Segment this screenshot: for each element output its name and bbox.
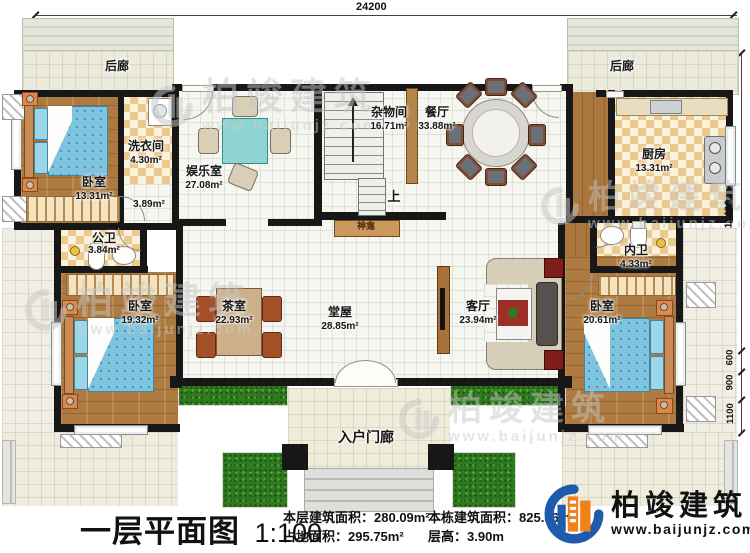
bed-pillow (34, 108, 48, 140)
room-area: 28.85m² (321, 321, 358, 332)
stat-label: 本栋建筑面积： (428, 510, 519, 525)
room-name: 客厅 (466, 299, 490, 313)
stat-value: 295.75m² (348, 529, 404, 544)
room-name: 卧室 (82, 175, 106, 189)
room-label-kitchen: 厨房 13.31m² (635, 148, 672, 174)
wall (212, 84, 532, 91)
stove-burner (709, 162, 721, 174)
nightstand (62, 300, 78, 315)
door-opening (606, 91, 624, 98)
room-label-bedroom3: 卧室 20.61m² (583, 300, 620, 326)
bed-pillow (650, 356, 664, 390)
stat-line: 本层建筑面积：280.09m² (283, 508, 430, 527)
game-table (222, 118, 268, 164)
room-name: 厨房 (642, 147, 666, 161)
floor-plan-page: 24200 11400 600 900 1100 后廊 后廊 入户门廊 (0, 0, 750, 553)
ac-unit (686, 282, 716, 308)
wall (58, 266, 148, 273)
room-name: 公卫 (92, 231, 116, 245)
wall (14, 223, 178, 230)
room-area: 3.89m² (133, 199, 165, 210)
bed-headboard (664, 316, 674, 394)
dimension-tick (738, 429, 745, 436)
brand-logo-icon (543, 484, 605, 544)
bed-sheet (584, 318, 610, 390)
bed-pillow (650, 320, 664, 354)
stairs-up-label: 上 (387, 190, 400, 204)
wall (560, 376, 572, 388)
room-name: 餐厅 (425, 105, 449, 119)
room-name: 杂物间 (371, 105, 407, 119)
porch-left-roof (22, 18, 174, 52)
entry-porch-floor (288, 388, 450, 468)
bed-pillow (74, 320, 88, 354)
partition-storage-dining (406, 88, 418, 184)
nightstand (62, 394, 78, 409)
wall (176, 378, 334, 386)
stat-label: 层高： (428, 529, 467, 544)
room-label-bedroom1: 卧室 13.31m² (75, 176, 112, 202)
room-area: 19.32m² (121, 315, 158, 326)
chair (528, 124, 546, 146)
room-label-bath-private: 内卫 4.33m² (620, 244, 652, 270)
room-label-entertainment: 娱乐室 27.08m² (185, 165, 222, 191)
sofa-cushions (536, 282, 558, 346)
stove-burner (709, 142, 721, 154)
side-table (544, 258, 564, 278)
side-yard-left (2, 228, 54, 434)
room-label-entry-porch: 入户门廊 (338, 430, 394, 445)
room-name: 卧室 (128, 299, 152, 313)
dimension-right-900: 900 (724, 375, 735, 391)
wall (314, 84, 322, 220)
stairs-lower-flight (358, 178, 386, 216)
dimension-line-top (35, 15, 737, 16)
bed-sheet (48, 106, 72, 174)
bed-pillow (34, 142, 48, 174)
window-sill (60, 434, 122, 448)
stairs-arrow-line (352, 104, 354, 162)
chair (262, 296, 282, 322)
window (675, 322, 686, 386)
room-label-living: 客厅 23.94m² (459, 300, 496, 326)
bed-headboard (24, 104, 34, 178)
room-area: 16.71m² (370, 121, 407, 132)
chair (270, 128, 291, 154)
chair (196, 332, 216, 358)
porch-left-floor (22, 50, 174, 95)
stat-line: 占地面积：295.75m² (283, 527, 430, 546)
table-plant (508, 308, 518, 318)
porch-right-floor (567, 50, 739, 95)
room-area: 13.31m² (635, 163, 672, 174)
stat-value: 3.90m (467, 529, 504, 544)
wall (566, 84, 573, 223)
bed-sheet (88, 318, 114, 390)
ac-unit (686, 396, 716, 422)
room-name: 茶室 (222, 299, 246, 313)
room-area: 4.33m² (620, 259, 652, 270)
room-label-bath-public: 公卫3.84m² (88, 232, 120, 256)
wall (170, 376, 182, 388)
shrine-label: 神龛 (357, 222, 375, 232)
washer-door (153, 104, 167, 118)
grass-strip-left (178, 384, 288, 406)
room-name: 堂屋 (328, 305, 352, 319)
bed-headboard (64, 316, 74, 394)
wall (596, 90, 606, 97)
room-label-hallway: 3.89m² (133, 197, 165, 210)
chair (485, 78, 507, 96)
room-label-storage: 杂物间 16.71m² (370, 106, 407, 132)
room-name: 娱乐室 (186, 164, 222, 178)
dimension-right-total: 11400 (722, 200, 734, 229)
chair (485, 168, 507, 186)
kitchen-corridor-floor (571, 92, 610, 220)
nightstand (22, 92, 38, 106)
side-table (544, 350, 564, 370)
brand-logo-block: 柏竣建筑 www.baijunjz.com (543, 484, 750, 544)
nightstand (656, 300, 673, 316)
room-label-laundry: 洗衣间 4.30m² (128, 140, 164, 166)
window (11, 116, 22, 170)
floor-drain (70, 246, 80, 256)
room-label-bedroom2: 卧室 19.32m² (121, 300, 158, 326)
dimension-line-right (741, 52, 742, 434)
wall (14, 90, 178, 97)
window-sill (586, 434, 648, 448)
side-steps-left (2, 440, 16, 504)
dining-table-top (472, 109, 520, 157)
room-name: 内卫 (624, 243, 648, 257)
dimension-top-label: 24200 (356, 1, 387, 13)
stairs-arrow-head (348, 97, 358, 106)
chair (232, 96, 258, 117)
chair (262, 332, 282, 358)
grass-strip-right (450, 384, 566, 406)
porch-pillar-right (428, 444, 454, 470)
floor-drain (656, 238, 666, 248)
window (725, 126, 736, 186)
wall (622, 90, 733, 97)
stat-value: 280.09m² (374, 510, 430, 525)
room-label-dining: 餐厅 33.88m² (418, 106, 455, 132)
nightstand (656, 398, 673, 414)
drawing-title: 一层平面图 (80, 514, 240, 549)
wardrobe (66, 274, 174, 296)
chair (196, 296, 216, 322)
room-label-porch-right: 后廊 (610, 60, 634, 73)
room-label-tearoom: 茶室 22.93m² (215, 300, 252, 326)
porch-pillar-left (282, 444, 308, 470)
grass-square-left (222, 452, 288, 508)
room-area: 23.94m² (459, 315, 496, 326)
stat-label: 本层建筑面积： (283, 510, 374, 525)
room-area: 27.08m² (185, 180, 222, 191)
brand-url: www.baijunjz.com (611, 521, 750, 537)
room-label-porch-left: 后廊 (105, 60, 129, 73)
tv (440, 288, 445, 330)
wall (608, 90, 615, 223)
porch-right-roof (567, 18, 739, 52)
room-area: 4.30m² (130, 155, 162, 166)
nightstand (22, 178, 38, 192)
dimension-right-1100: 1100 (725, 403, 736, 424)
room-area: 33.88m² (418, 121, 455, 132)
wall (176, 223, 183, 386)
window (51, 322, 62, 386)
room-name: 卧室 (590, 299, 614, 313)
stat-label: 占地面积： (283, 529, 348, 544)
room-area: 13.31m² (75, 191, 112, 202)
sink (600, 226, 624, 245)
room-label-hall-main: 堂屋 28.85m² (321, 306, 358, 332)
kitchen-sink (650, 100, 682, 114)
room-area: 20.61m² (583, 315, 620, 326)
room-name: 洗衣间 (128, 139, 164, 153)
wall (172, 84, 179, 230)
wardrobe (598, 276, 676, 296)
wall (268, 219, 322, 226)
dimension-right-600: 600 (724, 350, 735, 366)
room-area: 3.84m² (88, 245, 120, 256)
grass-square-right (452, 452, 516, 508)
room-area: 22.93m² (215, 315, 252, 326)
brand-name: 柏竣建筑 (611, 491, 750, 521)
brand-text-block: 柏竣建筑 www.baijunjz.com (611, 491, 750, 537)
chair (198, 128, 219, 154)
wall (396, 378, 570, 386)
bed-pillow (74, 356, 88, 390)
wall (140, 223, 147, 273)
stats-column-1: 本层建筑面积：280.09m² 占地面积：295.75m² (283, 508, 430, 546)
